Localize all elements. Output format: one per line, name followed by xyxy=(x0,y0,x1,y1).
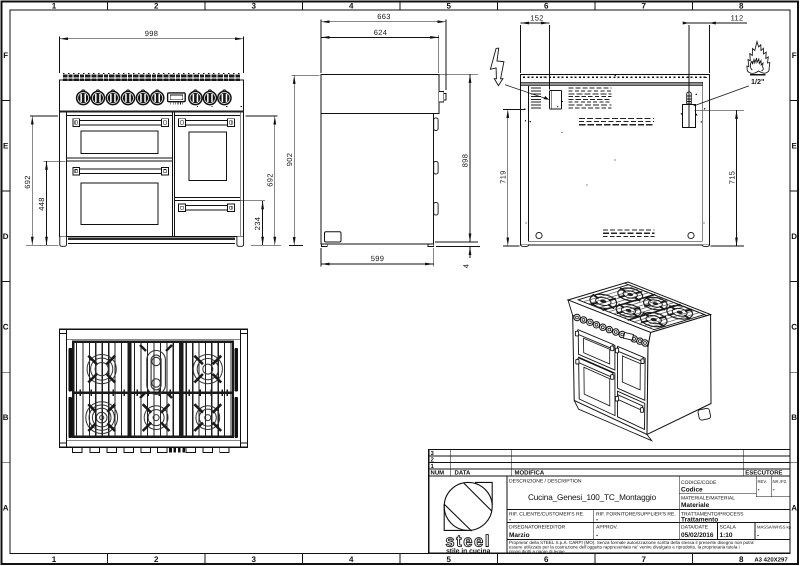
svg-text:Codice: Codice xyxy=(681,487,703,494)
svg-text:902: 902 xyxy=(285,153,294,166)
svg-text:-: - xyxy=(773,487,775,494)
svg-text:A3 420X297: A3 420X297 xyxy=(754,557,788,564)
svg-text:NUM: NUM xyxy=(431,470,445,477)
svg-text:MASSA/WHSS kg: MASSA/WHSS kg xyxy=(757,525,792,530)
svg-text:ESECUTORE: ESECUTORE xyxy=(745,470,782,477)
svg-text:DISEGNATORE/EDITOR: DISEGNATORE/EDITOR xyxy=(509,525,566,531)
svg-text:1:10: 1:10 xyxy=(720,532,733,539)
svg-text:5: 5 xyxy=(446,2,451,11)
svg-text:MODIFICA: MODIFICA xyxy=(515,470,545,477)
svg-text:DATA: DATA xyxy=(455,470,471,477)
svg-text:F: F xyxy=(3,51,8,60)
svg-text:1: 1 xyxy=(52,2,57,11)
svg-text:-: - xyxy=(758,487,760,494)
svg-text:RIF. FORNITORE/SUPPLIER'S RE.: RIF. FORNITORE/SUPPLIER'S RE. xyxy=(596,512,676,518)
svg-text:NR./PZ.: NR./PZ. xyxy=(773,479,788,484)
svg-text:3: 3 xyxy=(251,2,256,11)
svg-text:DESCRIZIONE / DESCRIPTION: DESCRIZIONE / DESCRIPTION xyxy=(509,479,582,485)
svg-text:RIF. CLIENTE/CUSTOMER'S RE.: RIF. CLIENTE/CUSTOMER'S RE. xyxy=(509,512,584,518)
svg-text:898: 898 xyxy=(461,154,470,167)
svg-text:7: 7 xyxy=(641,555,646,564)
svg-text:Cucina_Genesi_100_TC_Montaggio: Cucina_Genesi_100_TC_Montaggio xyxy=(528,493,657,502)
svg-text:A: A xyxy=(3,504,9,513)
svg-text:5: 5 xyxy=(446,555,451,564)
svg-text:1: 1 xyxy=(52,555,57,564)
svg-text:8: 8 xyxy=(739,555,744,564)
svg-text:SCALA: SCALA xyxy=(720,525,737,531)
svg-text:Materiale: Materiale xyxy=(681,502,710,509)
svg-text:B: B xyxy=(3,413,9,422)
svg-text:D: D xyxy=(3,232,9,241)
svg-text:CODICE/CODE: CODICE/CODE xyxy=(681,480,717,486)
svg-text:6: 6 xyxy=(544,2,549,11)
svg-text:152: 152 xyxy=(530,14,543,23)
svg-text:F: F xyxy=(792,51,797,60)
svg-text:2: 2 xyxy=(154,555,159,564)
svg-text:MATERIALE/MATERIAL: MATERIALE/MATERIAL xyxy=(681,496,735,502)
svg-text:663: 663 xyxy=(377,12,390,21)
svg-text:C: C xyxy=(791,323,797,332)
svg-text:Trattamento: Trattamento xyxy=(681,517,718,524)
svg-text:D: D xyxy=(791,232,797,241)
svg-text:692: 692 xyxy=(265,173,274,186)
svg-text:1/2": 1/2" xyxy=(751,77,764,86)
svg-text:-: - xyxy=(509,517,511,524)
svg-text:2: 2 xyxy=(154,2,159,11)
svg-text:112: 112 xyxy=(731,14,744,23)
svg-text:E: E xyxy=(3,142,9,151)
svg-text:719: 719 xyxy=(499,170,508,183)
svg-text:624: 624 xyxy=(374,28,387,37)
svg-text:DATA/DATE: DATA/DATE xyxy=(681,525,709,531)
svg-text:234: 234 xyxy=(253,217,262,230)
svg-text:599: 599 xyxy=(371,254,384,263)
svg-text:6: 6 xyxy=(544,555,549,564)
svg-text:715: 715 xyxy=(727,171,736,184)
svg-text:8: 8 xyxy=(739,2,744,11)
svg-text:C: C xyxy=(3,323,9,332)
svg-text:4: 4 xyxy=(349,2,354,11)
svg-text:Marzio: Marzio xyxy=(509,532,530,539)
svg-text:-: - xyxy=(596,532,598,539)
svg-text:-: - xyxy=(596,517,598,524)
svg-text:A: A xyxy=(791,504,797,513)
svg-text:998: 998 xyxy=(145,29,158,38)
svg-text:stile in cucina: stile in cucina xyxy=(446,548,491,555)
svg-text:05/02/2016: 05/02/2016 xyxy=(681,532,714,539)
svg-text:B: B xyxy=(791,413,797,422)
svg-text:REV.: REV. xyxy=(758,479,767,484)
svg-text:APPROV.: APPROV. xyxy=(596,525,618,531)
svg-text:448: 448 xyxy=(37,197,46,210)
svg-text:3: 3 xyxy=(251,555,256,564)
svg-text:-: - xyxy=(757,532,759,539)
svg-text:4: 4 xyxy=(461,264,470,268)
svg-text:7: 7 xyxy=(641,2,646,11)
svg-text:692: 692 xyxy=(23,175,32,188)
svg-text:4: 4 xyxy=(349,555,354,564)
svg-text:propri diritti a rigore di leg: propri diritti a rigore di legge. xyxy=(509,549,566,554)
svg-text:E: E xyxy=(792,142,798,151)
